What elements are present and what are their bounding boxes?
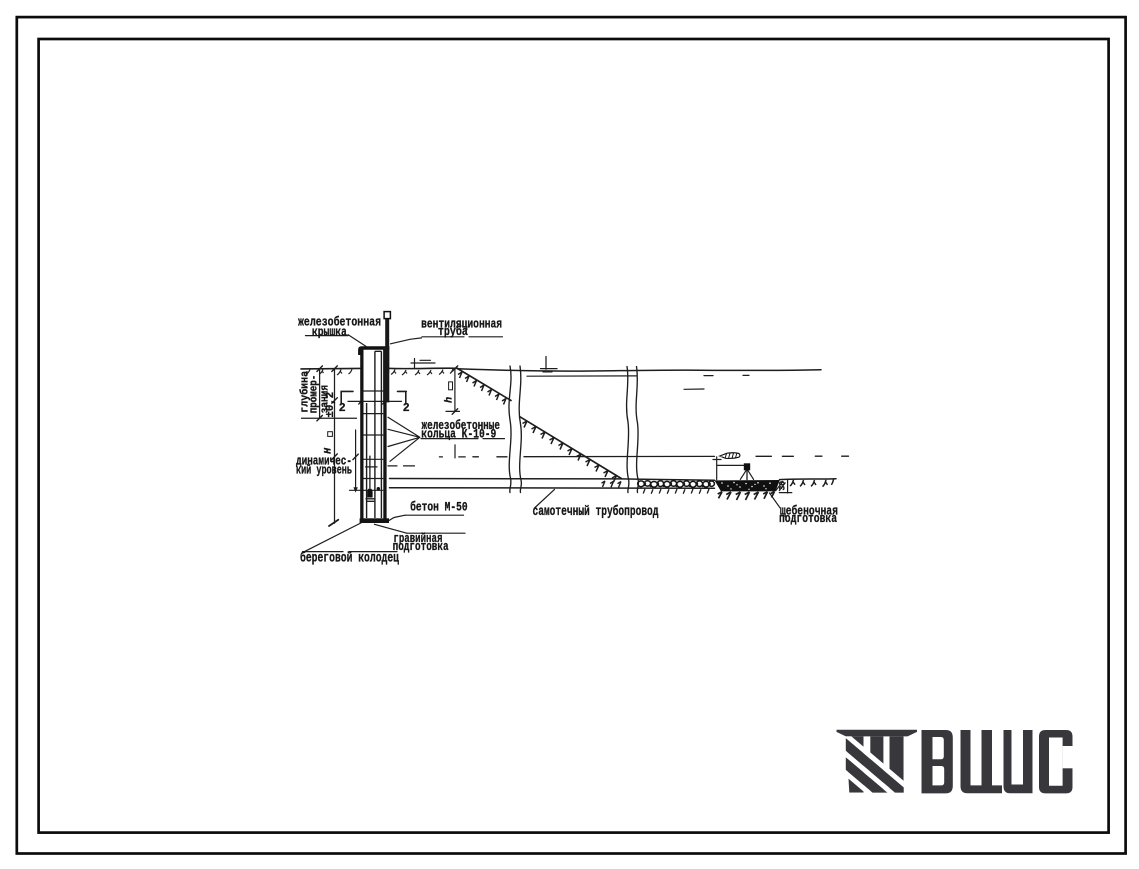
svg-text:труба: труба — [438, 324, 468, 339]
svg-text:2: 2 — [403, 402, 410, 415]
svg-text:береговой колодец: береговой колодец — [300, 550, 399, 566]
svg-text:крышка: крышка — [312, 324, 347, 339]
svg-text:кольца К-10-9: кольца К-10-9 — [421, 426, 496, 441]
svg-text:30: 30 — [779, 481, 788, 491]
svg-text:подготовка: подготовка — [393, 539, 449, 554]
svg-text:2: 2 — [339, 402, 346, 415]
svg-text:h: h — [444, 397, 456, 403]
svg-text:кий уровень: кий уровень — [296, 463, 352, 478]
svg-text:самотечный трубопровод: самотечный трубопровод — [533, 504, 659, 520]
svg-text:бетон М-50: бетон М-50 — [410, 500, 468, 515]
svg-text:±0,2: ±0,2 — [325, 392, 337, 418]
svg-text:подготовка: подготовка — [779, 511, 837, 526]
